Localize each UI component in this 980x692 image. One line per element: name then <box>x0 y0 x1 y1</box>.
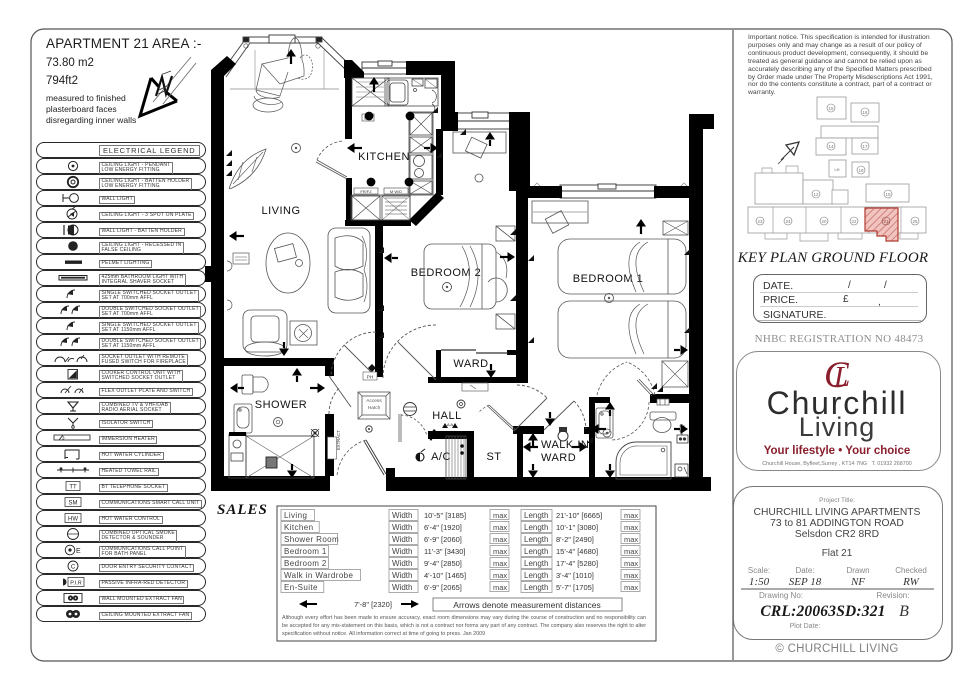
svg-text:Drawn: Drawn <box>846 566 869 575</box>
svg-text:CHURCHILL LIVING APARTMENTS: CHURCHILL LIVING APARTMENTS <box>754 507 921 518</box>
svg-text:Selsdon CR2 8RD: Selsdon CR2 8RD <box>795 529 879 540</box>
svg-text:Scale:: Scale: <box>748 566 770 575</box>
svg-text:Date:: Date: <box>795 566 814 575</box>
svg-text:/: / <box>848 280 851 291</box>
svg-text:1:50: 1:50 <box>749 576 770 588</box>
svg-text:DATE.: DATE. <box>763 280 793 292</box>
svg-text:NHBC REGISTRATION NO 48473: NHBC REGISTRATION NO 48473 <box>755 333 924 345</box>
svg-text:£: £ <box>843 294 849 305</box>
svg-text:Churchill House, Byfleet,Surre: Churchill House, Byfleet,Surrey , KT14 7… <box>762 461 912 467</box>
svg-text:NF: NF <box>850 576 865 588</box>
svg-text:Checked: Checked <box>895 566 927 575</box>
svg-text:PRICE.: PRICE. <box>763 294 798 306</box>
svg-text:Plot Date:: Plot Date: <box>790 623 821 630</box>
svg-text:SEP 18: SEP 18 <box>789 576 822 588</box>
svg-text:B: B <box>899 603 909 620</box>
svg-text:Flat 21: Flat 21 <box>822 548 853 559</box>
svg-text:SIGNATURE.: SIGNATURE. <box>763 309 826 321</box>
svg-text:Drawing No:: Drawing No: <box>759 591 803 600</box>
svg-text:Living: Living <box>799 412 876 442</box>
svg-text:/: / <box>884 280 887 291</box>
svg-text:Revision:: Revision: <box>877 591 910 600</box>
svg-text:CRL:20063SD:321: CRL:20063SD:321 <box>760 603 885 620</box>
svg-text:73 to 81 ADDINGTON ROAD: 73 to 81 ADDINGTON ROAD <box>770 518 904 529</box>
svg-text:Your lifestyle • Your choice: Your lifestyle • Your choice <box>764 445 911 457</box>
svg-text:RW: RW <box>902 576 920 588</box>
svg-text:Project Title:: Project Title: <box>819 497 855 504</box>
